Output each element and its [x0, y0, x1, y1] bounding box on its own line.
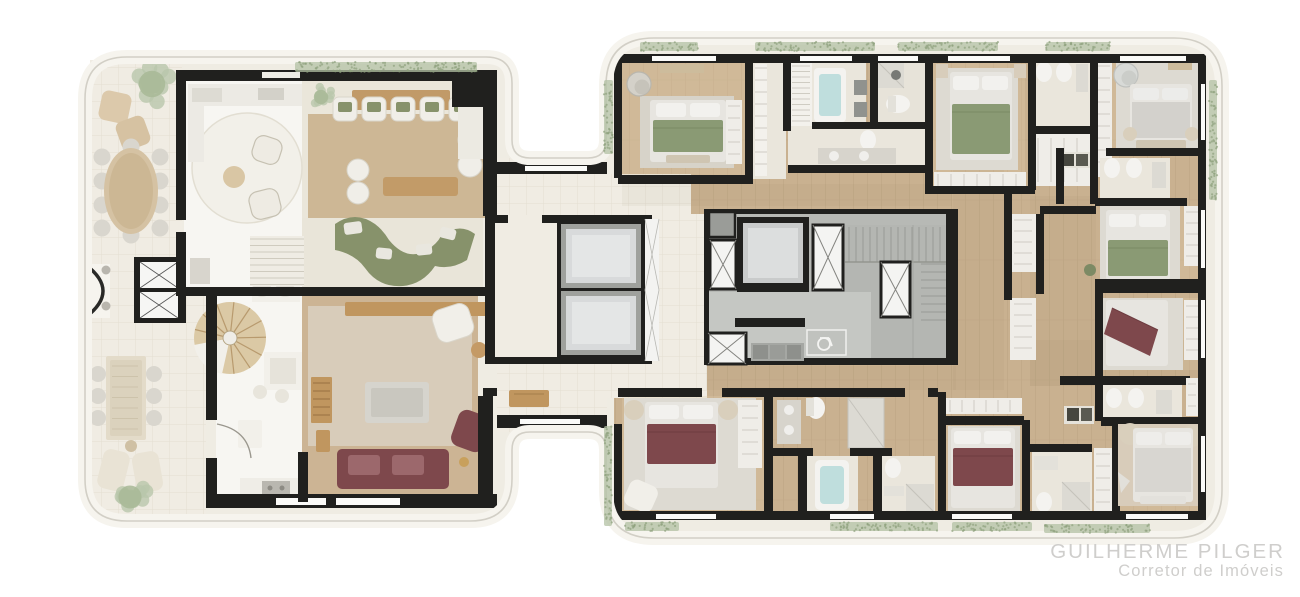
svg-text:Corretor de Imóveis: Corretor de Imóveis [1118, 562, 1284, 580]
svg-text:GUILHERME PILGER: GUILHERME PILGER [1050, 540, 1285, 563]
